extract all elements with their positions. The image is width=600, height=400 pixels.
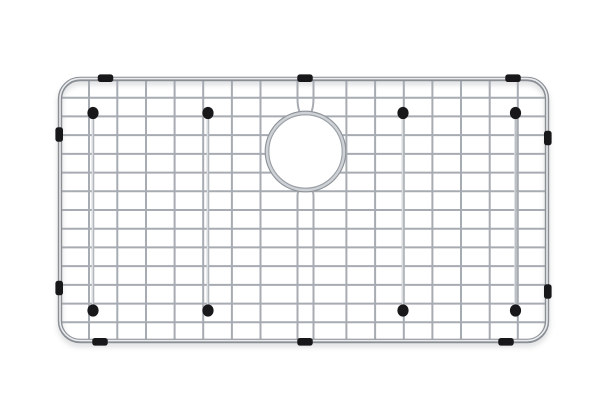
- rubber-bumper-bottom: [297, 338, 313, 346]
- rubber-foot-cap-top: [397, 107, 408, 119]
- rubber-foot-cap-bottom: [87, 304, 98, 316]
- rubber-bumper-right: [544, 131, 552, 146]
- rubber-bumper-left: [55, 127, 63, 142]
- rubber-bumper-top: [98, 74, 114, 82]
- rubber-bumper-top: [297, 74, 313, 82]
- hairpin-right-bottom-strand: [311, 189, 314, 340]
- rubber-foot-cap-top: [87, 107, 98, 119]
- rubber-bumper-left: [55, 281, 63, 296]
- rubber-bumper-top: [505, 74, 521, 82]
- product-photo-canvas: [0, 0, 600, 400]
- rubber-bumper-bottom: [498, 338, 514, 346]
- rubber-foot-cap-bottom: [202, 304, 213, 316]
- hairpin-left-bottom-strand: [298, 189, 301, 340]
- drain-opening-interior: [269, 115, 342, 188]
- rubber-bumper-bottom: [92, 338, 108, 346]
- rubber-foot-cap-bottom: [397, 304, 408, 316]
- rubber-foot-cap-top: [202, 107, 213, 119]
- rubber-bumper-right: [544, 284, 552, 299]
- sink-grid-photo: [0, 0, 600, 400]
- rubber-foot-cap-top: [510, 107, 521, 119]
- rubber-foot-cap-bottom: [510, 304, 521, 316]
